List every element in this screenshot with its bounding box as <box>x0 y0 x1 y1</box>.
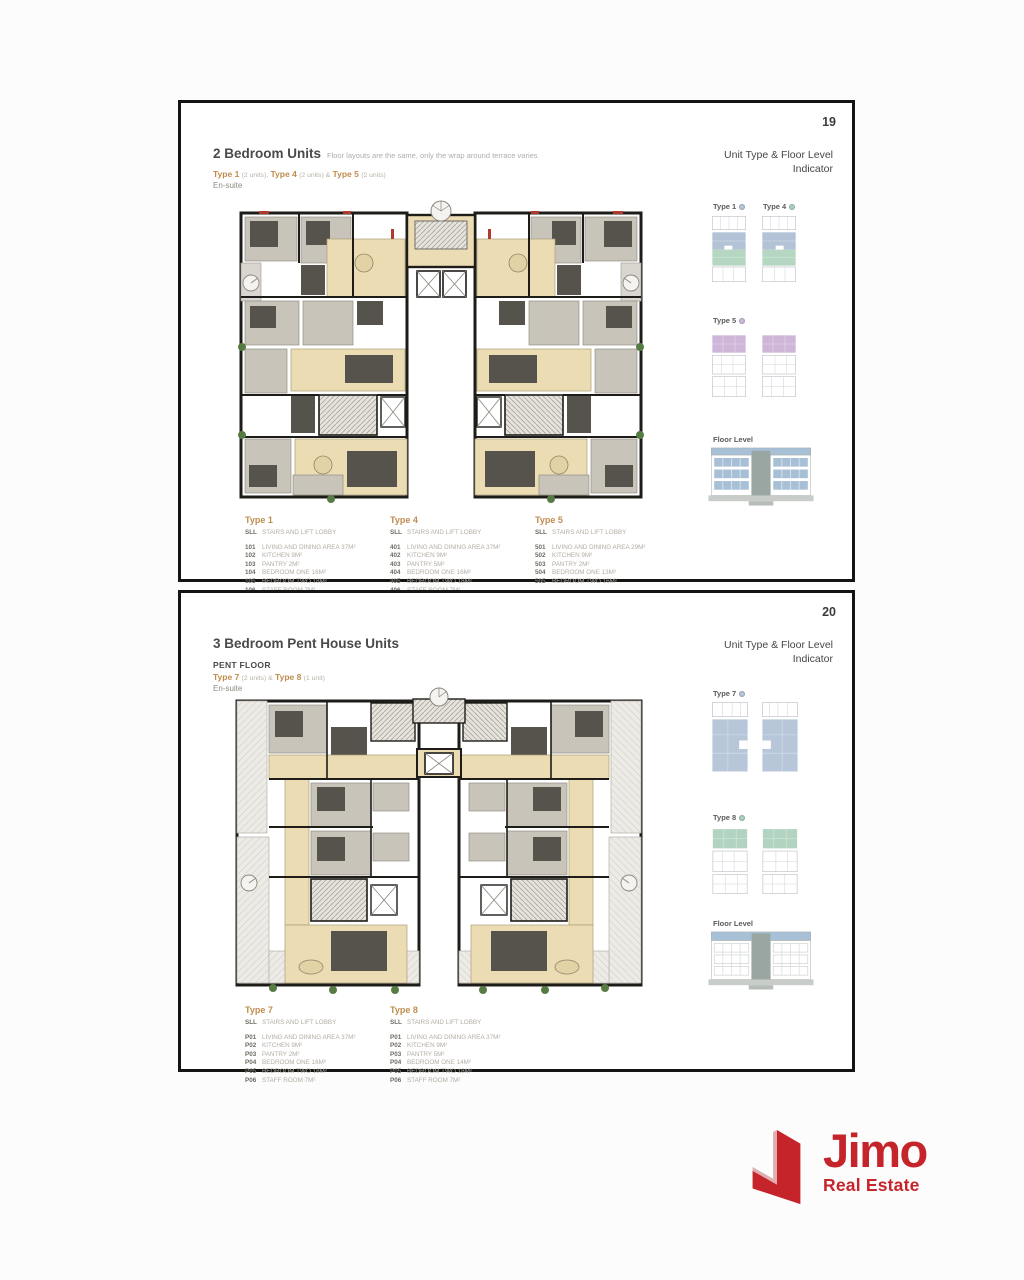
floor-level-label: Floor Level <box>713 435 753 444</box>
type-7-dot-icon <box>739 691 745 697</box>
room-legend: Type 7 SLLSTAIRS AND LIFT LOBBY P01LIVIN… <box>245 1005 535 1085</box>
room-legend: Type 1 SLLSTAIRS AND LIFT LOBBY 101LIVIN… <box>245 515 680 595</box>
type-8-dot-icon <box>739 815 745 821</box>
indicator-mini-plan-type8-left <box>711 825 749 895</box>
indicator-label-type-4: Type 4 <box>763 202 795 211</box>
floor-level-label: Floor Level <box>713 919 753 928</box>
page-number: 19 <box>822 115 836 129</box>
legend-type-7: Type 7 SLLSTAIRS AND LIFT LOBBY P01LIVIN… <box>245 1005 390 1085</box>
indicator-mini-plan-type14-left <box>711 214 747 284</box>
indicator-label-type-5: Type 5 <box>713 316 745 325</box>
brochure-page-20: 20 3 Bedroom Pent House Units PENT FLOOR… <box>178 590 855 1072</box>
pent-floor-label: PENT FLOOR <box>213 660 399 670</box>
floor-plan-penthouse <box>229 687 649 997</box>
indicator-label-type-1: Type 1 <box>713 202 745 211</box>
indicator-mini-plan-type5-right <box>761 329 797 399</box>
floor-level-elevation <box>707 929 815 991</box>
indicator-mini-plan-type8-right <box>761 825 799 895</box>
brand-name: Jimo <box>823 1128 927 1174</box>
legend-type-1: Type 1 SLLSTAIRS AND LIFT LOBBY 101LIVIN… <box>245 515 390 595</box>
jimo-logo-icon <box>744 1128 808 1208</box>
indicator-heading: Unit Type & Floor Level Indicator <box>681 639 833 666</box>
legend-type-4: Type 4 SLLSTAIRS AND LIFT LOBBY 401LIVIN… <box>390 515 535 595</box>
logo-text: Jimo Real Estate <box>823 1128 927 1196</box>
floor-plan-2bed <box>231 199 651 507</box>
type-4-dot-icon <box>789 204 795 210</box>
page-title: 3 Bedroom Pent House Units <box>213 636 399 651</box>
indicator-mini-plan-type7-left <box>711 701 749 773</box>
page-number: 20 <box>822 605 836 619</box>
indicator-label-type-7: Type 7 <box>713 689 745 698</box>
type-5-dot-icon <box>739 318 745 324</box>
jimo-logo: Jimo Real Estate <box>744 1128 927 1208</box>
indicator-label-type-8: Type 8 <box>713 813 745 822</box>
indicator-heading: Unit Type & Floor Level Indicator <box>681 149 833 176</box>
page-title: 2 Bedroom Units <box>213 146 321 161</box>
unit-types-line: Type 1 (2 units), Type 4 (2 units) & Typ… <box>213 169 538 179</box>
title-block: 2 Bedroom UnitsFloor layouts are the sam… <box>213 145 538 190</box>
brochure-page-19: 19 2 Bedroom UnitsFloor layouts are the … <box>178 100 855 582</box>
brand-tagline: Real Estate <box>823 1175 927 1196</box>
legend-type-5: Type 5 SLLSTAIRS AND LIFT LOBBY 501LIVIN… <box>535 515 680 595</box>
floor-level-elevation <box>707 445 815 507</box>
indicator-mini-plan-type14-right <box>761 214 797 284</box>
page-title-note: Floor layouts are the same, only the wra… <box>327 151 538 160</box>
ensuite-label: En-suite <box>213 181 538 190</box>
indicator-mini-plan-type5-left <box>711 329 747 399</box>
indicator-mini-plan-type7-right <box>761 701 799 773</box>
type-1-dot-icon <box>739 204 745 210</box>
legend-type-8: Type 8 SLLSTAIRS AND LIFT LOBBY P01LIVIN… <box>390 1005 535 1085</box>
unit-types-line: Type 7 (2 units) & Type 8 (1 unit) <box>213 672 399 682</box>
title-block: 3 Bedroom Pent House Units PENT FLOOR Ty… <box>213 635 399 693</box>
